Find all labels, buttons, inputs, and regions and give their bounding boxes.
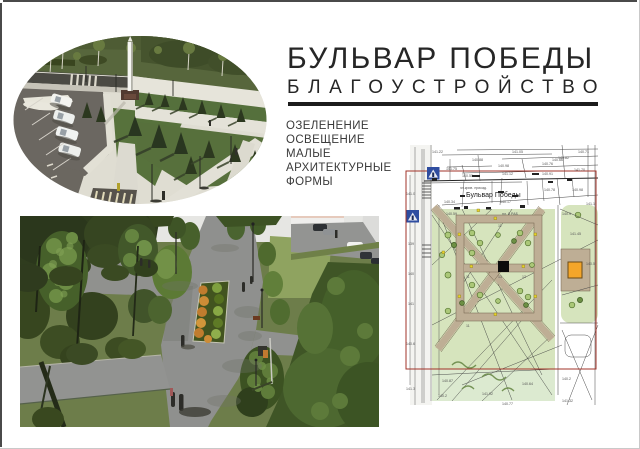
svg-text:140.34: 140.34 (444, 200, 455, 204)
svg-text:140.77: 140.77 (502, 402, 513, 406)
svg-text:140.88: 140.88 (472, 158, 483, 162)
svg-text:140.87: 140.87 (442, 379, 453, 383)
svg-text:140.64: 140.64 (522, 382, 533, 386)
svg-text:140: 140 (408, 272, 414, 276)
svg-text:141.70: 141.70 (574, 168, 585, 172)
svg-text:140.5: 140.5 (586, 262, 595, 266)
svg-text:140.6: 140.6 (406, 342, 415, 346)
svg-text:141.22: 141.22 (432, 150, 443, 154)
svg-text:140.59: 140.59 (446, 212, 457, 216)
svg-text:141.3: 141.3 (406, 387, 415, 391)
svg-text:140.2: 140.2 (438, 394, 447, 398)
svg-text:11: 11 (498, 224, 502, 228)
svg-text:141.45: 141.45 (570, 232, 581, 236)
svg-text:140.9: 140.9 (562, 212, 571, 216)
svg-text:141.05: 141.05 (512, 150, 523, 154)
svg-text:11: 11 (466, 275, 470, 279)
svg-text:140.78: 140.78 (544, 188, 555, 192)
svg-text:эл.крив. прикад.: эл.крив. прикад. (460, 186, 487, 190)
svg-text:141: 141 (408, 302, 414, 306)
svg-text:139: 139 (408, 242, 414, 246)
svg-text:140.17: 140.17 (500, 200, 511, 204)
svg-text:141.12: 141.12 (502, 172, 513, 176)
svg-text:140.2: 140.2 (562, 377, 571, 381)
svg-text:140.91: 140.91 (542, 172, 553, 176)
svg-text:141.0: 141.0 (406, 192, 415, 196)
svg-text:141.1: 141.1 (586, 202, 595, 206)
svg-text:140.98: 140.98 (572, 188, 583, 192)
svg-text:140.71: 140.71 (578, 150, 589, 154)
svg-text:140.55: 140.55 (462, 174, 473, 178)
svg-text:141.32: 141.32 (562, 399, 573, 403)
svg-text:141.02: 141.02 (482, 392, 493, 396)
svg-text:12: 12 (522, 275, 526, 279)
svg-text:140.76: 140.76 (542, 162, 553, 166)
svg-text:13: 13 (498, 275, 502, 279)
svg-text:пл. 8 РАБ: пл. 8 РАБ (502, 212, 519, 216)
svg-text:140.98: 140.98 (498, 164, 509, 168)
svg-text:140.82: 140.82 (558, 156, 569, 160)
svg-text:11: 11 (466, 324, 470, 328)
svg-text:141.75: 141.75 (446, 167, 457, 171)
